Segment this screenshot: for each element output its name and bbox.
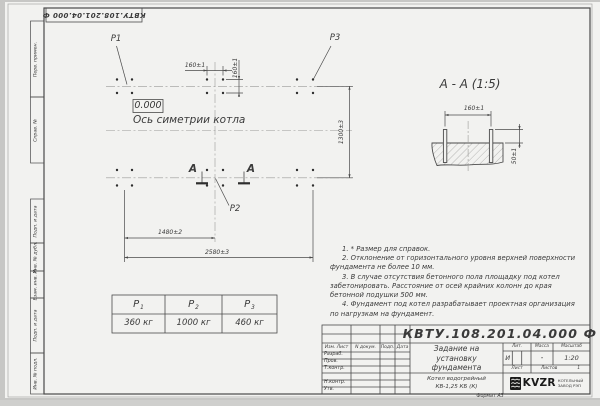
- company-logo: KVZR КОТЕЛЬНЫЙ ЗАВОД РЭП: [503, 374, 590, 393]
- kvzr-logo-icon: [510, 377, 521, 390]
- row-label-utv: Утв.: [324, 388, 351, 395]
- product-name: Котел водогрейный КВ-1,25 КБ (К): [411, 375, 502, 393]
- margin-cell-label: Справ. №: [33, 98, 42, 162]
- load-point-p3-label: P3: [326, 33, 344, 43]
- symmetry-axis-label: Ось симетрии котла: [133, 114, 263, 126]
- technical-notes: 1. * Размер для справок. 2. Отклонение о…: [330, 245, 584, 319]
- p-base: P: [188, 300, 194, 310]
- margin-cell-label: Перв. примен.: [33, 27, 42, 91]
- margin-cell-label: Инв. № подл.: [33, 342, 42, 406]
- product-name-line: Котел водогрейный: [427, 376, 486, 384]
- row-label-tkontr: Т.контр.: [324, 367, 351, 374]
- load-point-p1-label: P1: [107, 34, 125, 44]
- load-point-p2-label: P2: [226, 204, 244, 214]
- format-label: Формат А3: [460, 394, 520, 400]
- loads-value-p1: 360 кг: [112, 314, 165, 333]
- logo-text: KVZR: [523, 378, 556, 389]
- loads-header-p3: P3: [222, 295, 277, 314]
- section-dimension-lines: [445, 111, 523, 148]
- sheets-label: Листов: [541, 367, 557, 371]
- section-letter-right: А: [245, 163, 257, 175]
- p-sub: 3: [251, 306, 255, 312]
- product-name-line: КВ-1,25 КБ (К): [436, 384, 478, 392]
- sheet-label: Лист: [503, 366, 531, 373]
- note-2: 2. Отклонение от горизонтального уровня …: [330, 254, 584, 272]
- section-view-title: А - А (1:5): [433, 77, 507, 91]
- p-base: P: [244, 300, 250, 310]
- document-title: Задание на установку фундамента: [411, 345, 502, 372]
- section-dim-protrusion: 50±1: [511, 145, 519, 167]
- section-dimension-arrows: [445, 114, 521, 147]
- dim-span-partial: 1480±2: [152, 229, 188, 237]
- anchor-bolt-right: [489, 130, 492, 163]
- col-header-sign: Подп.: [380, 344, 395, 352]
- col-header-date: Дата: [395, 344, 410, 352]
- mass-value: -: [531, 352, 553, 364]
- mass-label: Масса: [531, 344, 553, 351]
- p-sub: 1: [140, 306, 144, 312]
- anchor-bolt-left: [443, 130, 446, 163]
- loads-value-p2: 1000 кг: [165, 314, 222, 333]
- logo-caption: КОТЕЛЬНЫЙ ЗАВОД РЭП: [558, 379, 584, 388]
- section-letter-left: А: [187, 163, 199, 175]
- note-4: 4. Фундамент под котел разрабатывает про…: [330, 300, 584, 318]
- level-mark: 0.000: [133, 100, 163, 112]
- loads-header-p2: P2: [165, 295, 222, 314]
- sheets-value: 1: [577, 367, 580, 371]
- note-1: 1. * Размер для справок.: [330, 245, 584, 254]
- p-base: P: [133, 300, 139, 310]
- scale-value: 1:20: [553, 352, 590, 364]
- top-designation-stamp: КВТУ.108.201.04.000 Ф: [46, 8, 142, 22]
- sheets-cell: Листов 1: [531, 366, 590, 373]
- lit-value: И: [503, 352, 512, 364]
- loads-value-p3: 460 кг: [222, 314, 277, 333]
- document-title-line: Задание на: [434, 344, 479, 353]
- dim-bolt-spacing-v: 160±1: [232, 54, 240, 82]
- section-dim-bolt-spacing: 160±1: [461, 105, 487, 113]
- plan-centerlines: [106, 62, 352, 242]
- document-title-line: установку: [436, 354, 476, 363]
- scale-label: Масштаб: [553, 344, 590, 351]
- col-header-izm: Изм. Лист: [322, 344, 351, 352]
- dim-span-total: 2580±3: [196, 249, 238, 257]
- dim-row-spacing: 1300±3: [338, 116, 346, 148]
- col-header-doc: N докум.: [351, 344, 380, 352]
- section-cut-marks: [196, 172, 250, 184]
- logo-caption-line: ЗАВОД РЭП: [558, 384, 584, 389]
- lit-label: Лит.: [503, 344, 531, 351]
- title-block-designation: КВТУ.108.201.04.000 Ф: [411, 326, 589, 342]
- drawing-sheet: КВТУ.108.201.04.000 Ф Перв. примен. Спра…: [0, 0, 600, 400]
- dim-bolt-spacing-h: 160±1: [181, 62, 209, 70]
- note-3: 3. В случае отсутствия бетонного пола пл…: [330, 273, 584, 301]
- p-sub: 2: [195, 306, 199, 312]
- loads-header-p1: P1: [112, 295, 165, 314]
- document-title-line: фундамента: [432, 363, 482, 372]
